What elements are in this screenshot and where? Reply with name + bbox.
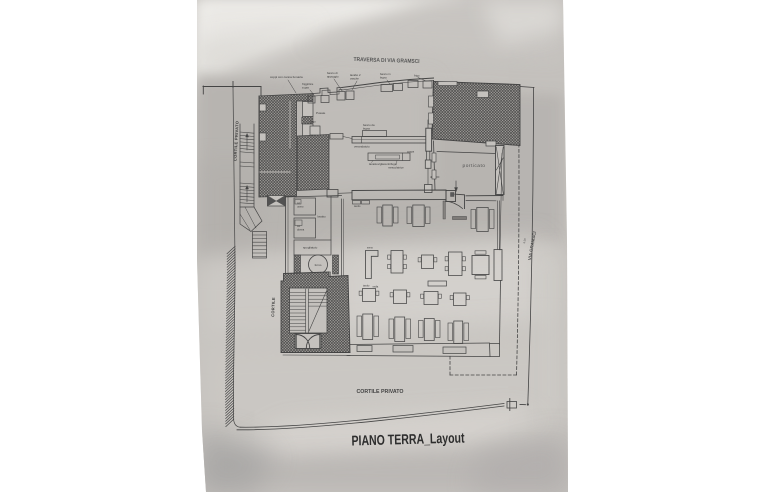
- svg-text:legna: legna: [363, 127, 370, 131]
- svg-text:appoggio: appoggio: [327, 75, 339, 79]
- svg-text:porticato: porticato: [463, 163, 486, 169]
- svg-text:servo: servo: [367, 247, 374, 250]
- svg-text:coppa: coppa: [407, 151, 415, 154]
- svg-text:verandatoio: verandatoio: [354, 145, 370, 149]
- svg-text:spogliatoio: spogliatoio: [303, 246, 318, 250]
- svg-text:forno: forno: [315, 263, 322, 267]
- svg-text:lavabo: lavabo: [318, 215, 327, 219]
- svg-text:frigo: frigo: [310, 120, 316, 124]
- svg-text:a gas: a gas: [302, 86, 309, 90]
- svg-text:tavolo: tavolo: [354, 205, 361, 208]
- svg-text:donna: donna: [297, 228, 305, 232]
- svg-text:CORTILE: CORTILE: [270, 297, 276, 317]
- svg-text:CORTILE PRIVATO: CORTILE PRIVATO: [357, 389, 404, 395]
- svg-text:sedia: sedia: [373, 286, 379, 289]
- svg-text:mescolatrice: mescolatrice: [388, 165, 404, 169]
- svg-text:legno: legno: [380, 76, 387, 80]
- svg-text:uomo: uomo: [297, 206, 304, 209]
- svg-text:Pusate: Pusate: [316, 111, 326, 115]
- svg-text:coppi con canna fumaria: coppi con canna fumaria: [270, 75, 303, 79]
- svg-text:vasche: vasche: [350, 77, 359, 81]
- svg-text:tavolo: tavolo: [363, 285, 370, 288]
- svg-text:PIANO TERRA_Layout: PIANO TERRA_Layout: [351, 431, 465, 450]
- svg-text:frigo: frigo: [414, 74, 420, 78]
